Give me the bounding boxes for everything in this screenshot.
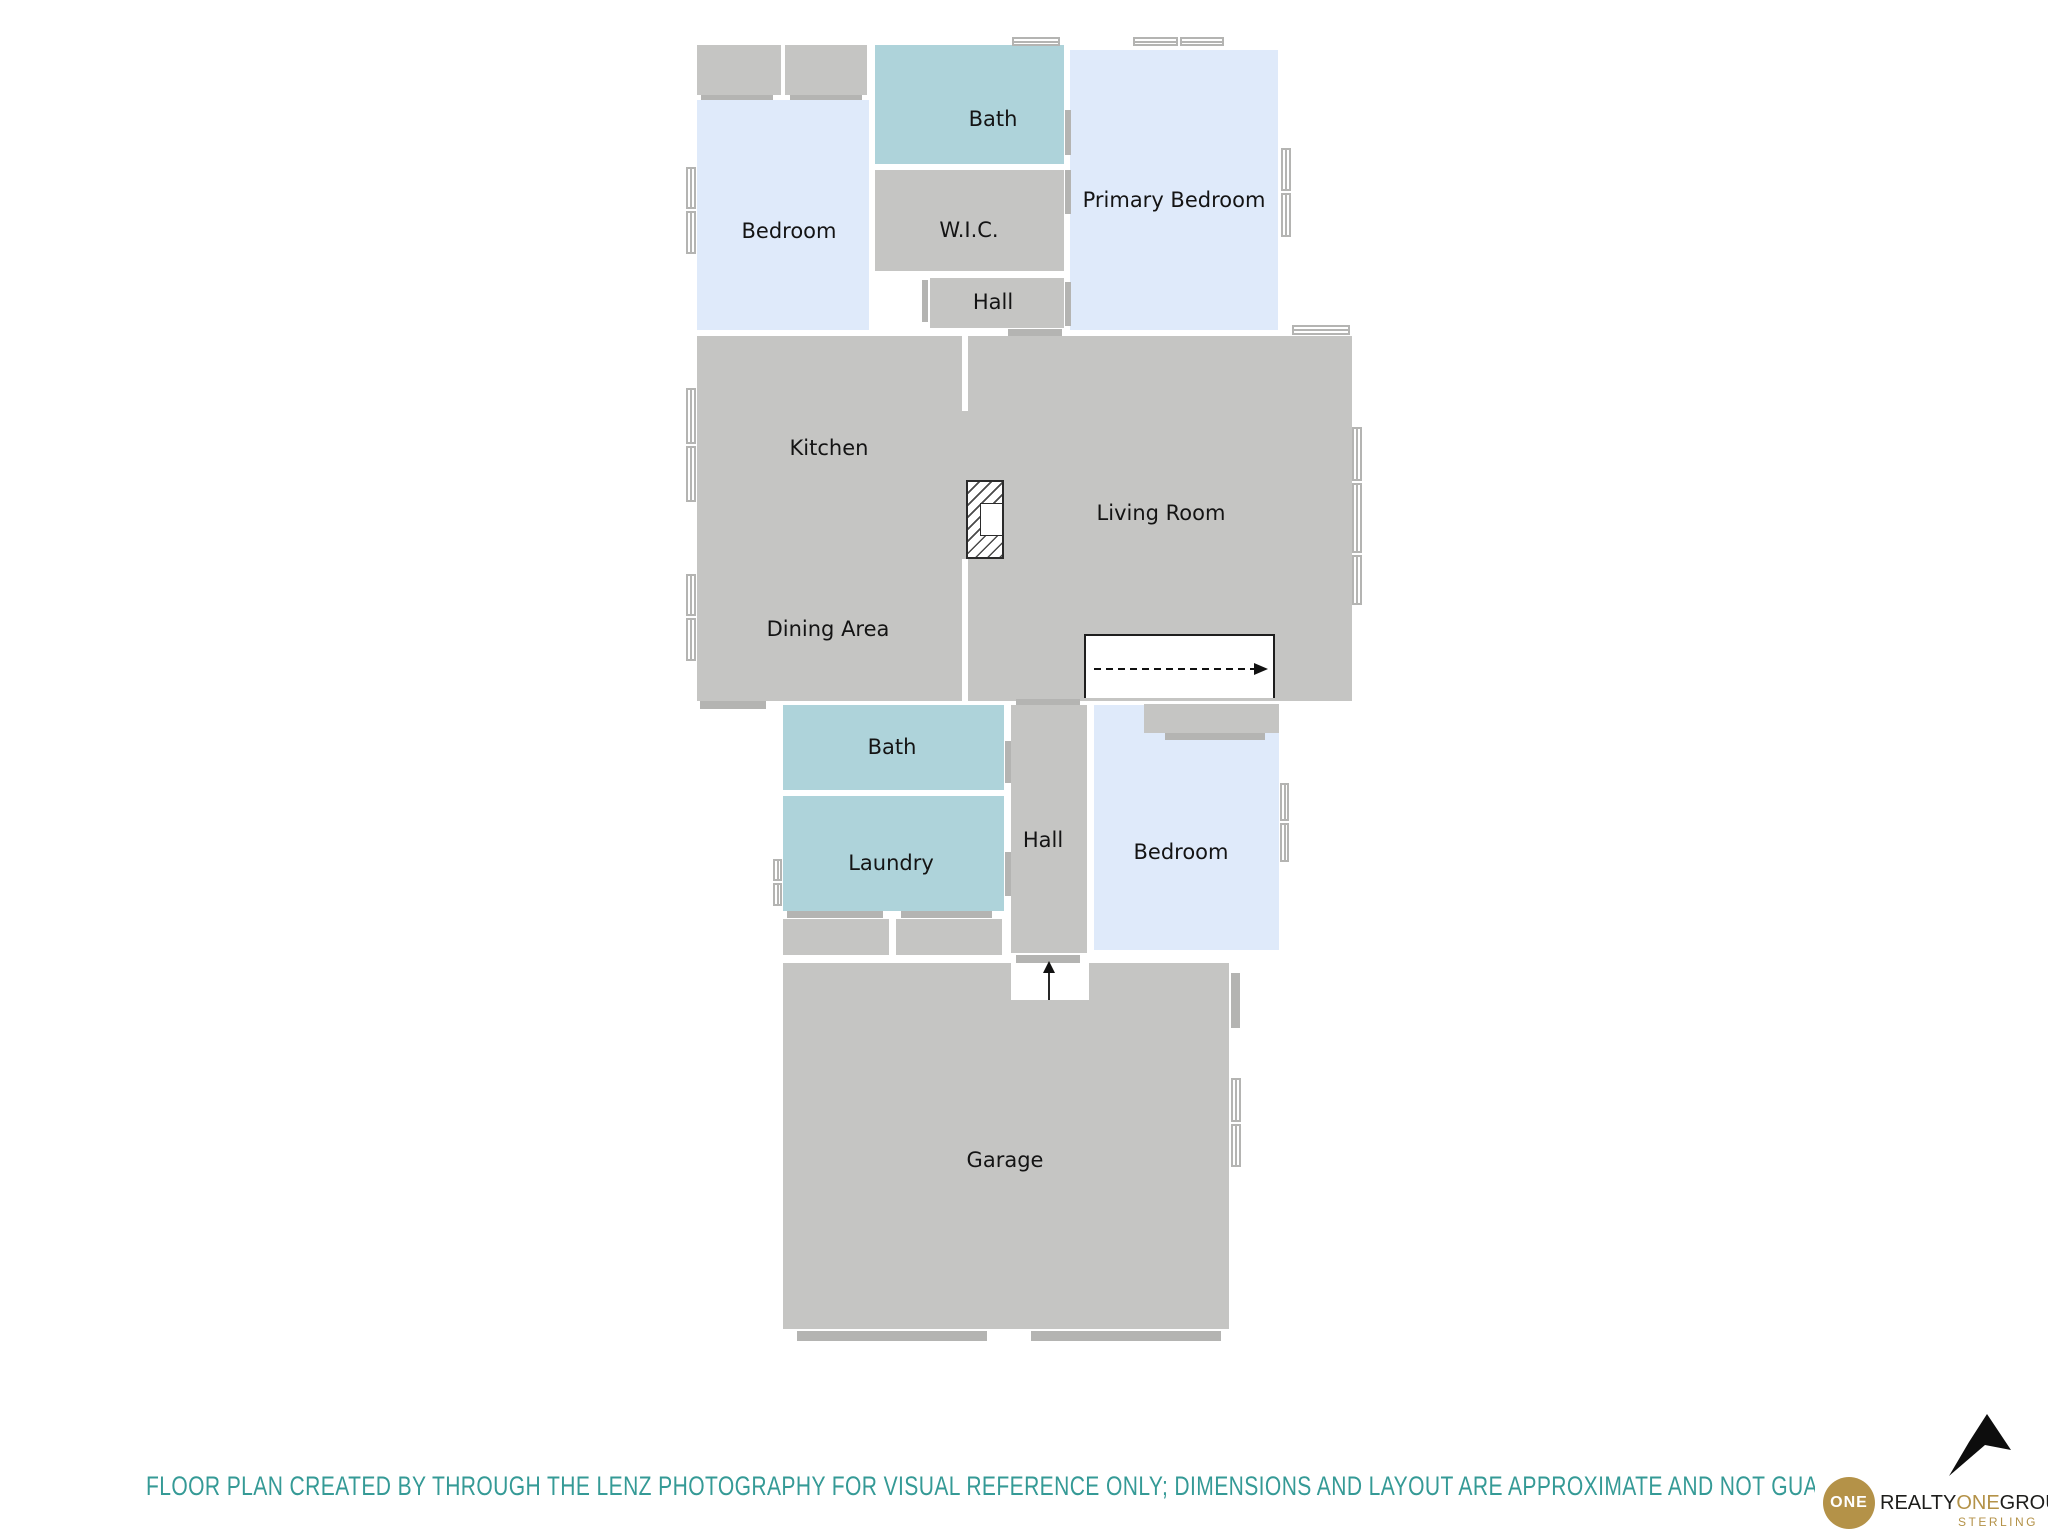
label-wic: W.I.C. [939,218,998,242]
label-bedroom-upper: Bedroom [742,219,837,243]
closet-lower-left [783,919,889,955]
window-icon [686,618,696,661]
disclaimer-text: FLOOR PLAN CREATED BY THROUGH THE LENZ P… [146,1471,2048,1502]
window-icon [686,388,696,444]
door-marker [1065,282,1071,326]
fireplace-icon [966,480,1004,559]
label-garage: Garage [967,1148,1044,1172]
window-icon [1292,325,1350,335]
closet-door-marker [787,911,883,918]
door-marker [1065,110,1071,155]
interior-wall [962,336,968,411]
door-marker [1005,741,1011,783]
room-bedroom-upper [697,100,869,330]
closet-door-marker [1165,733,1265,740]
logo-group: GROUP [2000,1492,2048,1514]
window-icon [1231,1078,1241,1122]
label-kitchen: Kitchen [790,436,869,460]
window-icon [1281,148,1291,191]
firebox [980,503,1003,536]
interior-wall [962,559,968,701]
window-icon [773,883,782,906]
stairs [1084,634,1275,698]
window-icon [1180,37,1224,46]
label-living-room: Living Room [1097,501,1226,525]
label-dining-area: Dining Area [767,617,890,641]
room-bedroom-lower [1094,705,1279,950]
label-hall-lower: Hall [1023,828,1063,852]
closet-door-marker [901,911,992,918]
garage-door-marker [1031,1331,1221,1341]
label-primary-bedroom: Primary Bedroom [1083,188,1266,212]
door-marker [922,280,928,322]
label-bath-lower: Bath [868,735,917,759]
door-marker [1231,973,1240,1028]
stairs-arrow-icon [1086,636,1273,696]
logo-realty: REALTY [1880,1492,1956,1514]
window-icon [1133,37,1178,46]
logo-circle-text: ONE [1830,1494,1868,1512]
logo-brand-text: REALTYONEGROUP [1880,1492,2048,1515]
realty-one-group-logo: ONE REALTYONEGROUP STERLING [1815,1392,2048,1536]
window-icon [686,574,696,616]
closet-top-right [785,45,867,95]
door-marker [1065,170,1071,214]
window-icon [686,167,696,209]
logo-one: ONE [1956,1492,1999,1514]
garage-door-marker [797,1331,987,1341]
door-marker [1008,329,1062,336]
window-icon [1231,1124,1241,1167]
window-icon [773,859,782,881]
closet-top-left [697,45,781,95]
logo-sterling-text: STERLING [1958,1515,2038,1529]
room-bath-upper [875,45,1064,164]
window-icon [686,211,696,254]
door-marker [1005,852,1011,896]
logo-one-circle: ONE [1823,1477,1875,1529]
floor-plan: Bedroom Bath W.I.C. Hall Primary Bedroom… [0,0,2048,1536]
room-garage [783,963,1229,1329]
window-icon [1280,783,1289,821]
window-icon [1352,555,1362,605]
label-bedroom-lower: Bedroom [1134,840,1229,864]
label-laundry: Laundry [848,851,934,875]
window-icon [1352,427,1362,481]
window-icon [686,446,696,502]
bedroom-notch [1144,704,1279,733]
label-bath-upper: Bath [969,107,1018,131]
closet-lower-right [896,919,1002,955]
window-icon [1012,37,1060,46]
window-icon [1281,193,1291,237]
door-marker [700,701,766,709]
logo-arrow-icon [1943,1414,2013,1476]
entry-arrow-icon [1038,960,1060,1002]
window-icon [1352,483,1362,553]
window-icon [1280,823,1289,862]
label-hall-upper: Hall [973,290,1013,314]
